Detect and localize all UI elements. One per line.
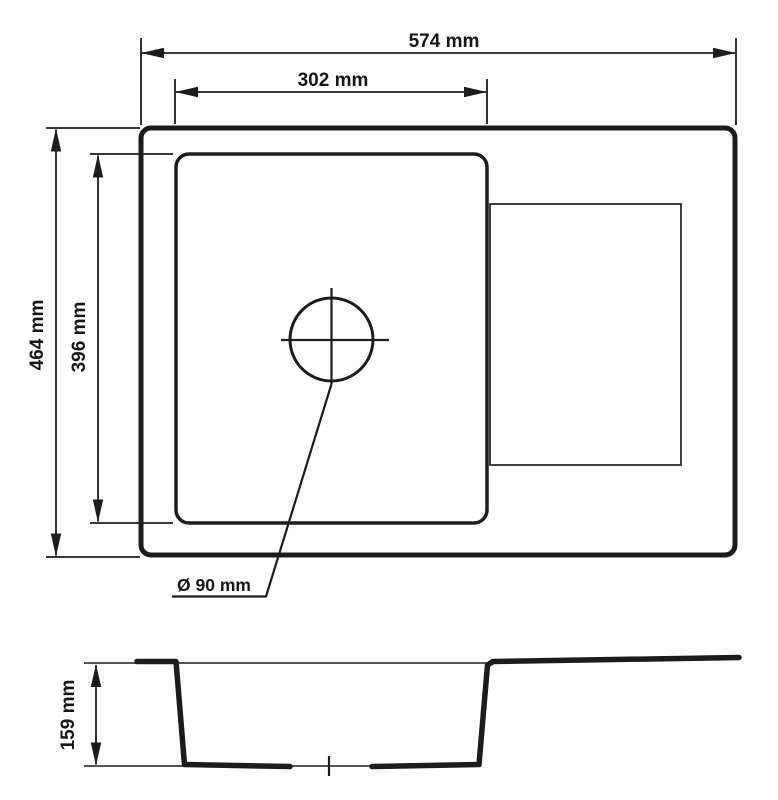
dimension-bowl-width: 302 mm <box>175 70 487 124</box>
overall-width-label: 574 mm <box>409 31 480 52</box>
drain-leader-line <box>172 384 332 597</box>
section-profile-left <box>137 662 290 767</box>
top-view: Ø 90 mm <box>141 128 735 597</box>
drain-diameter-label: Ø 90 mm <box>177 575 251 595</box>
section-view: 159 mm <box>58 658 739 777</box>
dimension-overall-width: 574 mm <box>141 31 736 125</box>
bowl-width-label: 302 mm <box>298 70 369 91</box>
dimension-bowl-depth: 396 mm <box>69 154 173 523</box>
dimension-bowl-height: 159 mm <box>58 665 96 765</box>
bowl-depth-label: 396 mm <box>69 302 90 373</box>
drawing-canvas: Ø 90 mm 574 mm 302 mm 464 mm 396 mm <box>0 0 778 800</box>
sink-outer-rim <box>141 128 735 555</box>
sink-dimension-drawing: Ø 90 mm 574 mm 302 mm 464 mm 396 mm <box>0 0 778 800</box>
bowl-height-label: 159 mm <box>58 680 79 751</box>
drainboard-outline <box>490 204 681 465</box>
overall-depth-label: 464 mm <box>27 300 48 371</box>
section-profile-right <box>372 658 739 767</box>
